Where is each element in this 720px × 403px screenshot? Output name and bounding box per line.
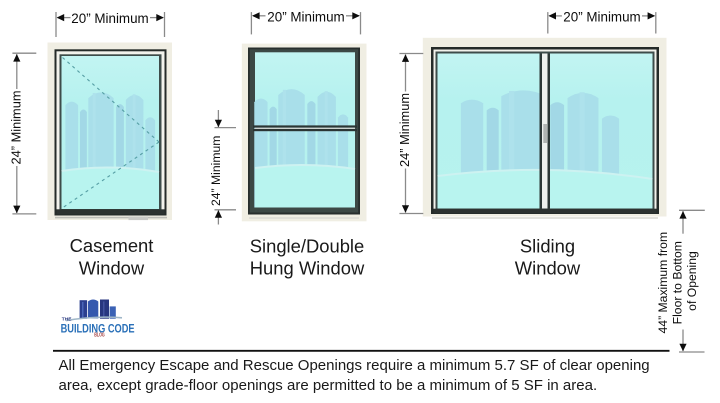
svg-text:Sliding: Sliding (520, 235, 575, 256)
svg-text:24” Minimum: 24” Minimum (8, 91, 23, 165)
svg-text:All Emergency Escape and Rescu: All Emergency Escape and Rescue Openings… (59, 357, 650, 374)
svg-text:Single/Double: Single/Double (250, 235, 365, 256)
svg-text:20” Minimum: 20” Minimum (71, 11, 148, 26)
svg-text:24” Minimum: 24” Minimum (209, 136, 223, 206)
svg-text:20” Minimum: 20” Minimum (267, 9, 344, 24)
svg-text:20” Minimum: 20” Minimum (563, 9, 640, 24)
svg-text:area, except grade-floor openi: area, except grade-floor openings are pe… (59, 377, 598, 394)
svg-text:BLOG: BLOG (94, 333, 105, 339)
svg-text:Casement: Casement (70, 235, 154, 256)
svg-text:Window: Window (515, 258, 581, 279)
svg-text:Window: Window (79, 258, 145, 279)
svg-text:24” Minimum: 24” Minimum (397, 93, 412, 167)
svg-text:Hung Window: Hung Window (250, 258, 365, 279)
